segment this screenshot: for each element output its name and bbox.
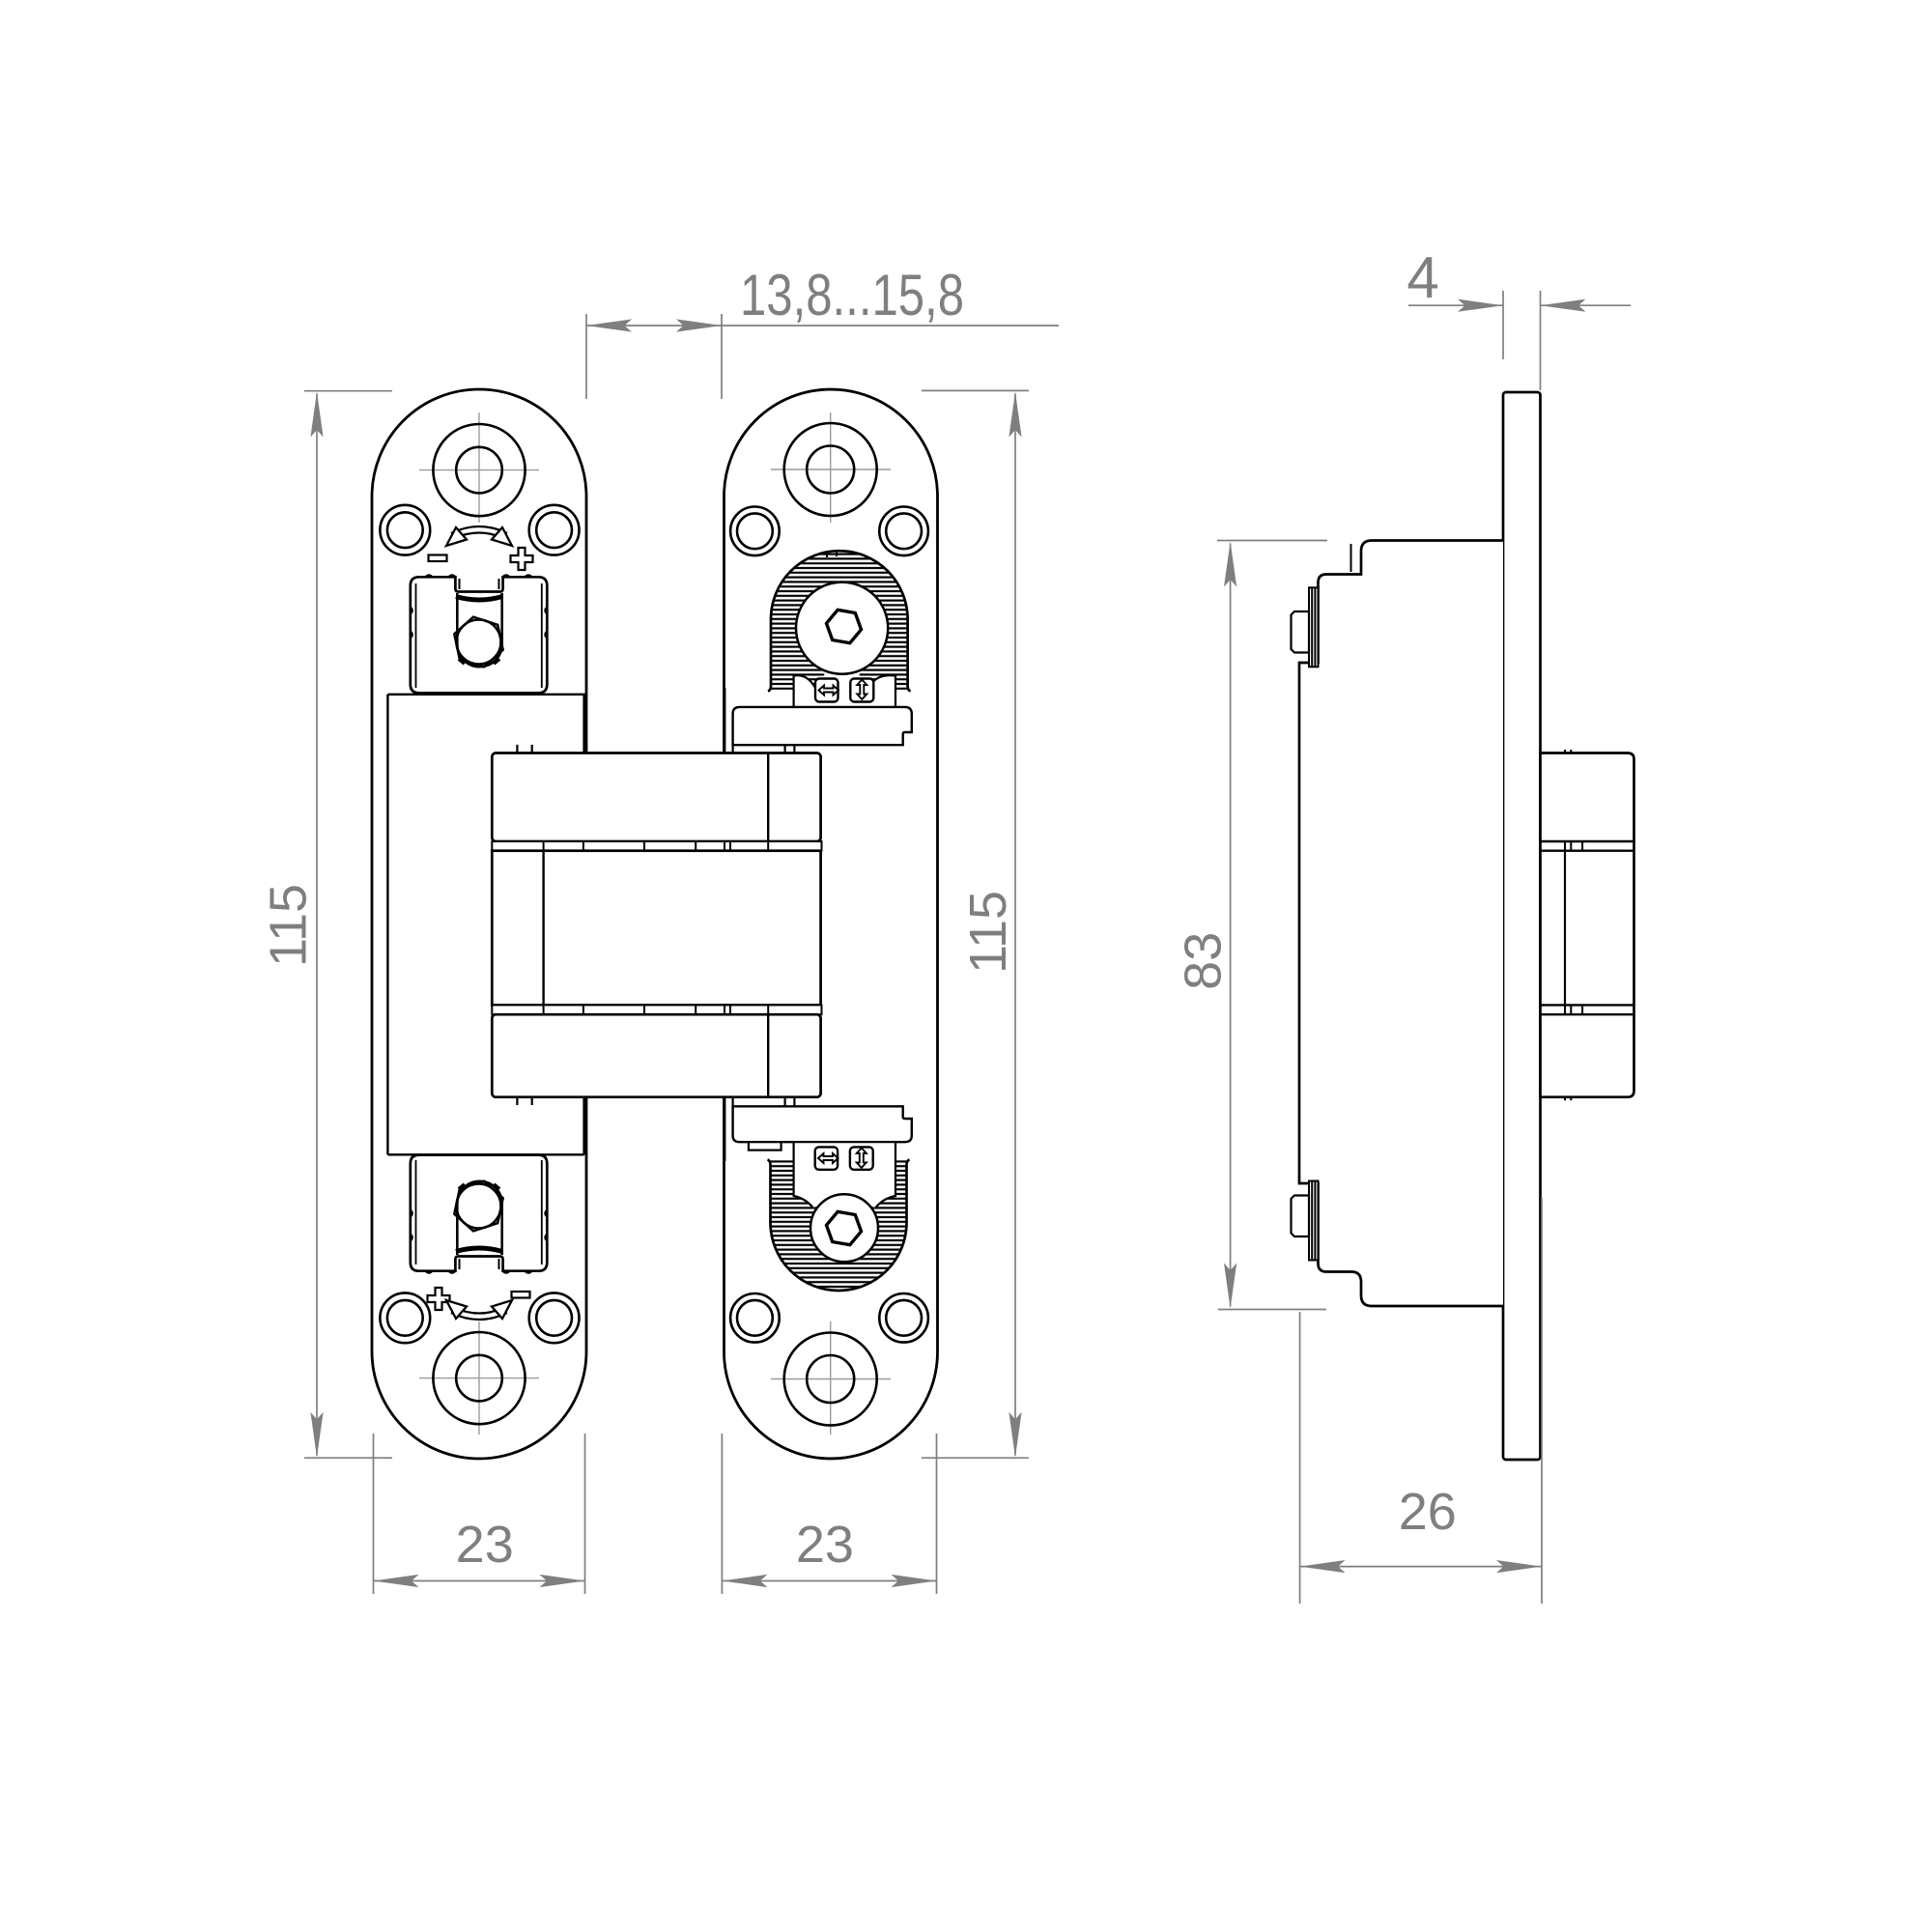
svg-text:23: 23 [456,1516,514,1574]
svg-text:13,8...15,8: 13,8...15,8 [740,263,964,327]
svg-text:26: 26 [1399,1483,1457,1541]
svg-text:115: 115 [260,884,318,967]
svg-text:4: 4 [1406,245,1438,310]
svg-text:115: 115 [959,891,1017,974]
svg-text:83: 83 [1175,932,1233,990]
svg-text:23: 23 [796,1516,854,1574]
